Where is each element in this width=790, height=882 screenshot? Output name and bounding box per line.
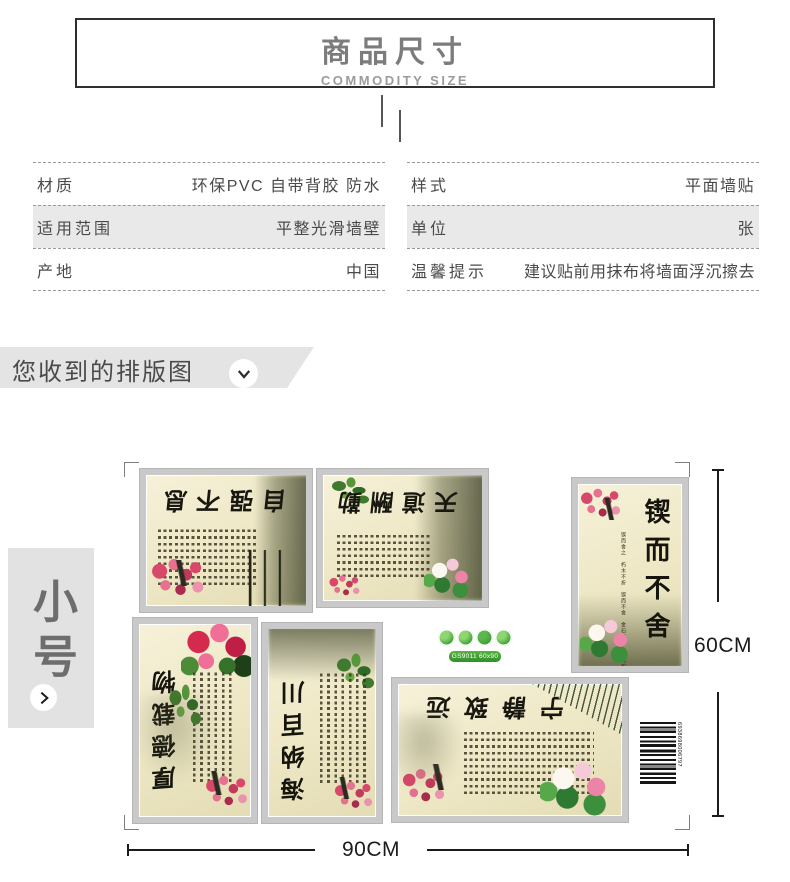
eco-cert-icon — [438, 629, 455, 646]
eco-badges — [438, 629, 512, 646]
ink-wash — [133, 694, 219, 784]
lotus-flowers — [424, 555, 476, 599]
spec-value: 环保PVC 自带背胶 防水 — [192, 172, 381, 196]
green-leaf-icon — [495, 629, 512, 646]
poster-3: 锲而不舍 锲而舍之 朽木不折 锲而不舍 金石可镂 学习和实践过程中无论遇到什么困… — [572, 478, 688, 672]
chevron-down-glyph — [235, 365, 253, 383]
crop-mark-top-left — [124, 462, 139, 477]
poster-2-calligraphy: 天道酬勤 — [327, 487, 459, 521]
header-title: 商品尺寸 — [77, 27, 713, 71]
lotus-flowers — [540, 758, 618, 816]
faux-paragraph — [337, 533, 431, 577]
spec-value: 中国 — [346, 258, 381, 282]
spec-row-origin: 产地 中国 — [33, 248, 385, 291]
layout-section-title: 您收到的排版图 — [12, 352, 194, 387]
barcode-number: 6938698006797 — [676, 722, 682, 786]
plum-branch — [146, 560, 216, 586]
lotus-flowers — [580, 616, 636, 664]
spec-label: 单位 — [411, 215, 449, 239]
spec-row-tip: 温馨提示 建议贴前用抹布将墙面浮沉擦去 — [407, 248, 759, 291]
commodity-size-header: 商品尺寸 COMMODITY SIZE — [75, 18, 715, 88]
spec-row-material: 材质 环保PVC 自带背胶 防水 — [33, 162, 385, 205]
chevron-right-glyph — [36, 690, 52, 706]
dim-v-bottom-cap — [712, 815, 724, 817]
barcode — [640, 722, 676, 784]
plum-blossom — [327, 575, 361, 599]
poster-4: 厚德载物 — [133, 618, 257, 823]
spec-row-scope: 适用范围 平整光滑墙壁 — [33, 205, 385, 248]
bamboo — [244, 550, 288, 606]
poster-2: 天道酬勤 — [317, 469, 488, 607]
poster-5: 海纳百川 — [262, 623, 382, 823]
chevron-right-icon — [30, 684, 57, 711]
spec-value: 平整光滑墙壁 — [276, 215, 381, 239]
poster-3-calligraphy: 锲而不舍 — [637, 498, 674, 658]
spec-row-style: 样式 平面墙贴 — [407, 162, 759, 205]
ink-wash — [392, 714, 464, 794]
spec-label: 产地 — [37, 258, 75, 282]
model-label: GS9011 60x90 — [449, 651, 501, 662]
spec-label: 温馨提示 — [411, 258, 487, 282]
recycle-icon — [457, 629, 474, 646]
chevron-down-icon — [229, 359, 258, 388]
divider-slash-2 — [399, 110, 401, 142]
height-dimension-label: 60CM — [694, 634, 752, 658]
spec-value: 张 — [737, 215, 755, 239]
poster-1-calligraphy: 自强不息 — [152, 485, 288, 520]
spec-row-unit: 单位 张 — [407, 205, 759, 248]
plum-branch — [312, 777, 376, 799]
header-subtitle: COMMODITY SIZE — [77, 73, 713, 88]
dim-h-line-right — [427, 849, 687, 851]
poster-1: 自强不息 — [140, 469, 312, 612]
spec-label: 材质 — [37, 172, 75, 196]
faux-columns — [320, 671, 366, 783]
divider-slash-1 — [381, 95, 383, 127]
spec-table-right: 样式 平面墙贴 单位 张 温馨提示 建议贴前用抹布将墙面浮沉擦去 — [407, 162, 759, 291]
plum-branch — [578, 498, 640, 520]
dim-h-line-left — [129, 849, 315, 851]
poster-6: 宁静致远 — [392, 678, 628, 822]
spec-label: 样式 — [411, 172, 449, 196]
spec-value: 平面墙贴 — [685, 172, 755, 196]
poster-5-calligraphy: 海纳百川 — [278, 670, 313, 802]
product-detail-page: 商品尺寸 COMMODITY SIZE 材质 环保PVC 自带背胶 防水 适用范… — [0, 0, 790, 882]
spec-value: 建议贴前用抹布将墙面浮沉擦去 — [524, 258, 755, 282]
crop-mark-bottom-right — [675, 815, 690, 830]
width-dimension-label: 90CM — [315, 838, 427, 862]
crop-mark-top-right — [675, 462, 690, 477]
dim-v-line-upper — [717, 470, 719, 602]
dim-v-line-lower — [717, 692, 719, 816]
spec-label: 适用范围 — [37, 215, 113, 239]
pvc-cert-icon — [476, 629, 493, 646]
dim-h-right-cap — [687, 844, 689, 856]
spec-table-left: 材质 环保PVC 自带背胶 防水 适用范围 平整光滑墙壁 产地 中国 — [33, 162, 385, 291]
